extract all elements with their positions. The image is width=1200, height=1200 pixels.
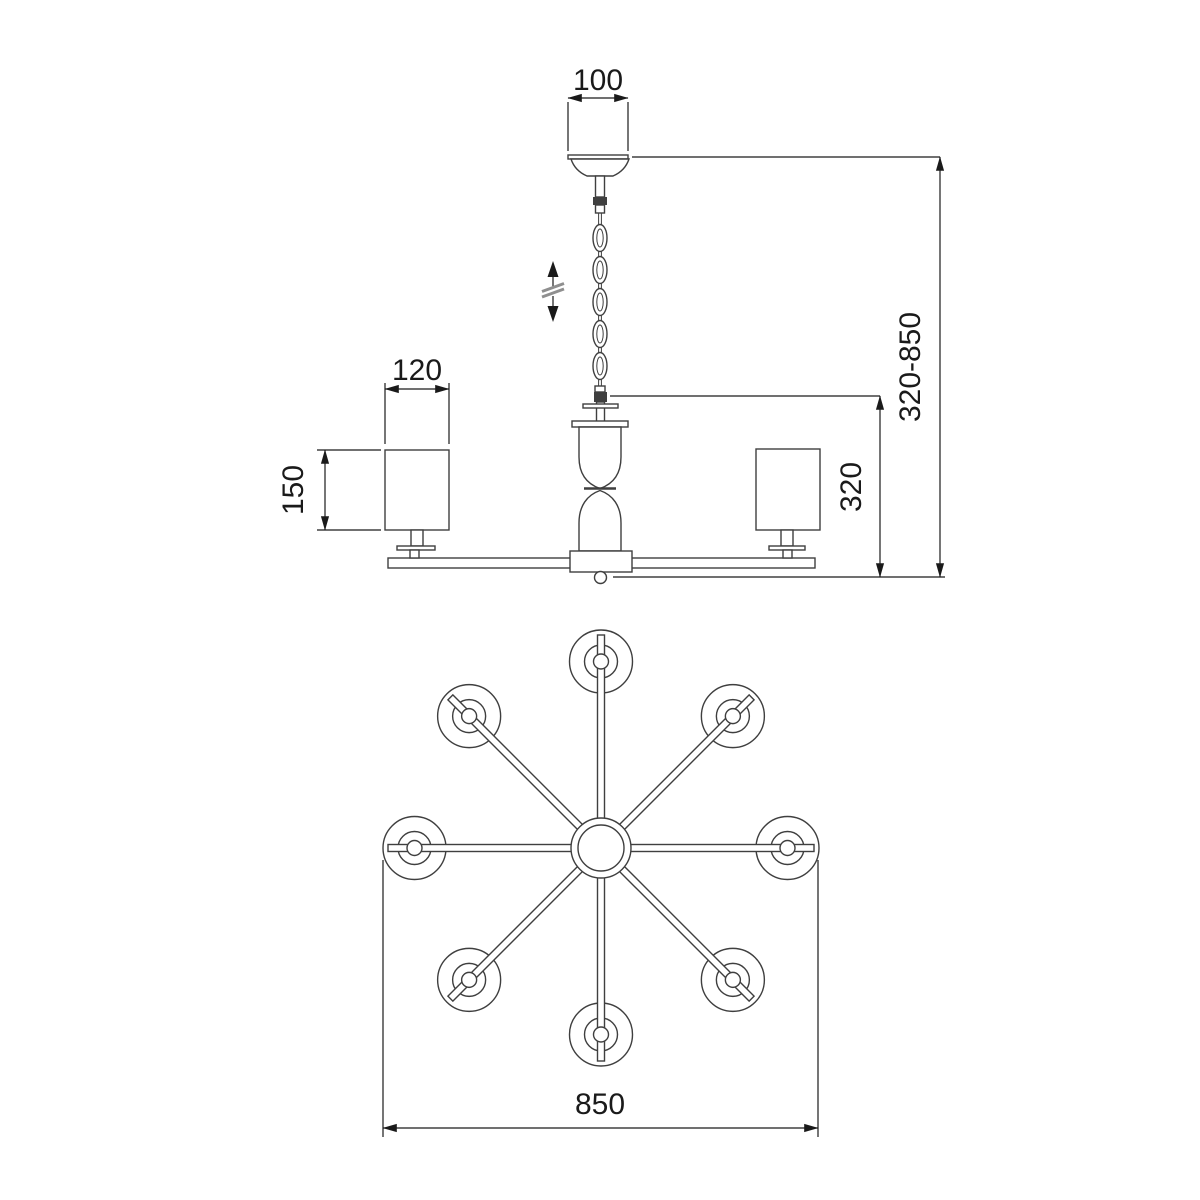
center-hub [570, 551, 632, 572]
dimension-label-850: 850 [575, 1088, 625, 1121]
plan-shade-socket [407, 841, 422, 856]
dimension-shade-height: 150 [277, 450, 381, 530]
plan-shade-socket [725, 709, 740, 724]
dimension-label-100: 100 [573, 64, 623, 97]
chandelier-drawing: 100 [0, 0, 1200, 1200]
suspension-chain [593, 213, 607, 390]
dimension-overall-height: 320-850 [894, 157, 940, 577]
dimension-label-320-850: 320-850 [894, 312, 927, 422]
plan-shade-socket [462, 972, 477, 987]
plan-shade-socket [594, 654, 609, 669]
dimension-label-320: 320 [835, 462, 868, 512]
ball-finial [595, 572, 607, 584]
lamp-shade-right [756, 449, 820, 558]
plan-view: 850 [383, 630, 819, 1137]
drawing-page: 100 [0, 0, 1200, 1200]
chain-connector [583, 386, 618, 422]
central-glass-body [572, 421, 628, 551]
plan-shade-socket [462, 709, 477, 724]
chain-links [593, 225, 607, 380]
side-view: 100 [277, 64, 945, 584]
height-adjustable-icon [542, 261, 564, 322]
lamp-shade-left [385, 450, 449, 558]
plan-shade-socket [594, 1027, 609, 1042]
dimension-canopy-width: 100 [568, 64, 628, 151]
dimension-shade-width: 120 [385, 354, 449, 444]
dimension-label-150: 150 [277, 465, 310, 515]
ceiling-canopy [568, 155, 629, 213]
plan-center-hub [571, 818, 631, 878]
dimension-label-120: 120 [392, 354, 442, 387]
dimension-body-height: 320 [835, 396, 880, 577]
plan-shade-socket [725, 972, 740, 987]
plan-shade-socket [780, 841, 795, 856]
